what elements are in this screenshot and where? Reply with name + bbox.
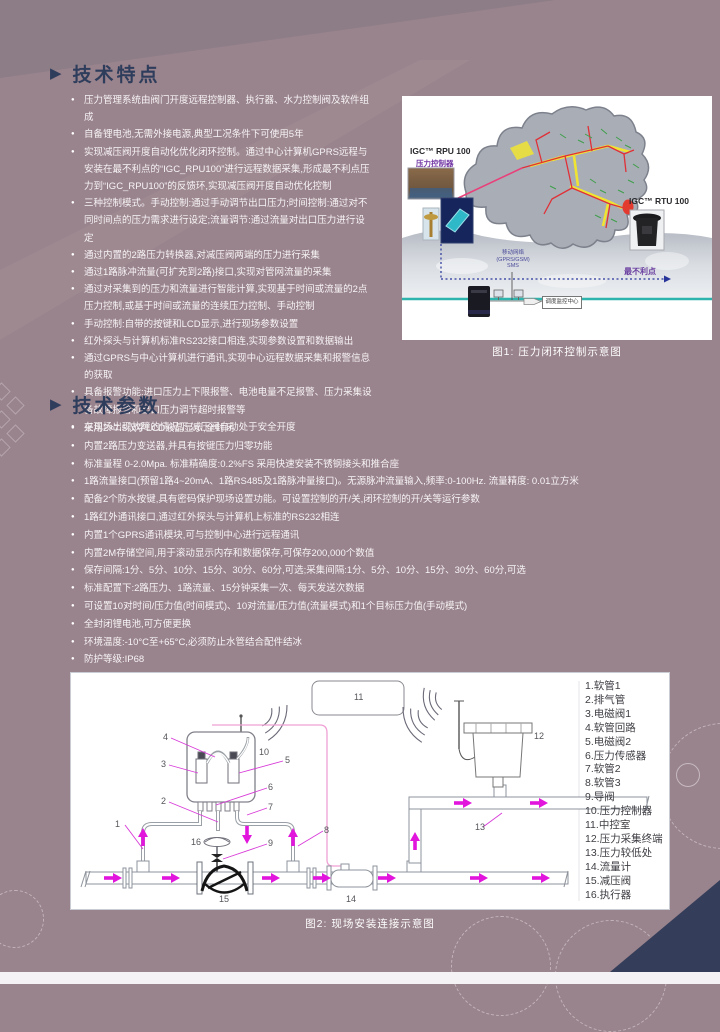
figure2-panel: 1 2 3 4 5 6 7 8 9 10 11 12 13 14 15 16 1… <box>70 672 670 910</box>
network-label: 移动网络 (GPRS/GSM) SMS <box>490 250 536 270</box>
sensor-ports <box>198 802 239 811</box>
collection-terminal <box>464 723 532 787</box>
component-number: 7 <box>268 803 273 812</box>
figure2-caption: 图2: 现场安装连接示意图 <box>70 916 670 931</box>
component-number: 2 <box>161 797 166 806</box>
legend-item: 2.排气管 <box>585 694 669 708</box>
legend-item: 1.软管1 <box>585 680 669 694</box>
bottom-strip <box>0 972 720 984</box>
dashed-circle-bottom <box>451 916 551 1016</box>
feature-item: 通过内置的2路压力转换器,对减压阀两端的压力进行采集 <box>72 247 374 264</box>
legend-item: 3.电磁阀1 <box>585 708 669 722</box>
legend-item: 5.电磁阀2 <box>585 736 669 750</box>
section-arrow-icon: ▶ <box>50 397 62 412</box>
component-number: 6 <box>268 783 273 792</box>
legend-item: 8.软管3 <box>585 777 669 791</box>
legend-item: 14.流量计 <box>585 861 669 875</box>
param-item: 标准量程 0-2.0Mpa. 标准精确度:0.2%FS 采用快速安装不锈钢接头和… <box>72 456 708 474</box>
component-number: 5 <box>285 756 290 765</box>
map-blob <box>464 107 648 248</box>
dashed-circle-bottom-right <box>555 920 667 1032</box>
watermark-diamond <box>0 410 11 428</box>
feature-item: 通过对采集到的压力和流量进行智能计算,实现基于时间或流量的2点压力控制,或基于时… <box>72 281 374 315</box>
feature-item: 通过GPRS与中心计算机进行通讯,实现中心远程数据采集和报警信息的获取 <box>72 350 374 384</box>
watermark-diamond <box>6 396 24 414</box>
ring-right <box>676 763 700 787</box>
component-number: 9 <box>268 839 273 848</box>
component-number: 1 <box>115 820 120 829</box>
component-number: 3 <box>161 760 166 769</box>
network-label-line: SMS <box>490 263 536 270</box>
dashed-circle-left <box>0 890 44 948</box>
legend-item: 7.软管2 <box>585 763 669 777</box>
param-item: 配备2个防水按键,具有密码保护现场设置功能。可设置控制的开/关,闭环控制的开/关… <box>72 491 708 509</box>
legend-item: 15.减压阀 <box>585 875 669 889</box>
watermark-diamond <box>0 382 11 400</box>
param-item: 1路红外通讯接口,通过红外探头与计算机上标准的RS232相连 <box>72 509 708 527</box>
param-item: 1路流量接口(预留1路4~20mA、1路RS485及1路脉冲量接口)。无源脉冲流… <box>72 473 708 491</box>
params-list: 采用2×7.5汉字LCD液晶显示,全封闭 内置2路压力变送器,并具有按键压力归零… <box>72 420 708 669</box>
watermark-diamond <box>0 438 11 456</box>
param-item: 内置1个GPRS通讯模块,可与控制中心进行远程通讯 <box>72 527 708 545</box>
param-item: 可设置10对时间/压力值(时间模式)、10对流量/压力值(流量模式)和1个目标压… <box>72 598 708 616</box>
features-list: 压力管理系统由阀门开度远程控制器、执行器、水力控制阀及软件组成 自备锂电池,无需… <box>72 92 374 436</box>
component-number: 16 <box>191 838 201 847</box>
rpu-sublabel: 压力控制器 <box>416 158 454 169</box>
rtu-label: IGC™ RTU 100 <box>629 196 689 206</box>
legend-item: 6.压力传感器 <box>585 750 669 764</box>
legend-item: 4.软管回路 <box>585 722 669 736</box>
figure2-legend: 1.软管1 2.排气管 3.电磁阀1 4.软管回路 5.电磁阀2 6.压力传感器… <box>585 680 669 903</box>
component-number: 12 <box>534 732 544 741</box>
figure2-art <box>71 673 669 909</box>
datasheet-page: { "colors": { "background": "#99838C", "… <box>0 0 720 984</box>
legend-item: 9.导阀 <box>585 791 669 805</box>
control-center-box: 调度监控中心 <box>542 296 582 309</box>
params-title: 技术参数 <box>73 391 161 418</box>
legend-item: 13.压力较低处 <box>585 847 669 861</box>
feature-item: 自备锂电池,无需外接电源,典型工况条件下可使用5年 <box>72 126 374 143</box>
legend-item: 16.执行器 <box>585 889 669 903</box>
feature-item: 压力管理系统由阀门开度远程控制器、执行器、水力控制阀及软件组成 <box>72 92 374 126</box>
feature-item: 实现减压阀开度自动化优化闭环控制。通过中心计算机GPRS远程与安装在最不利点的“… <box>72 144 374 196</box>
legend-item: 11.中控室 <box>585 819 669 833</box>
watermark-diamond <box>6 424 24 442</box>
component-number: 14 <box>346 895 356 904</box>
section-arrow-icon: ▶ <box>50 66 62 81</box>
component-number: 10 <box>259 748 269 757</box>
component-number: 4 <box>163 733 168 742</box>
feature-item: 手动控制:自带的按键和LCD显示,进行现场参数设置 <box>72 316 374 333</box>
flow-meter <box>327 864 377 890</box>
feature-item: 通过1路脉冲流量(可扩充到2路)接口,实现对管网流量的采集 <box>72 264 374 281</box>
params-header: ▶ 技术参数 <box>50 391 161 418</box>
component-number: 15 <box>219 895 229 904</box>
param-item: 标准配置下:2路压力、1路流量、15分钟采集一次、每天发送次数据 <box>72 580 708 598</box>
legend-item: 10.压力控制器 <box>585 805 669 819</box>
param-item: 全封闭锂电池,可方便更换 <box>72 616 708 634</box>
param-item: 内置2路压力变送器,并具有按键压力归零功能 <box>72 438 708 456</box>
param-item: 防护等级:IP68 <box>72 651 708 669</box>
component-number: 11 <box>354 693 363 702</box>
component-number: 13 <box>475 823 485 832</box>
figure1-caption: 图1: 压力闭环控制示意图 <box>402 344 712 359</box>
param-item: 环境温度:-10°C至+65°C,必须防止水管结合配件结冰 <box>72 634 708 652</box>
feature-item: 红外探头与计算机标准RS232接口相连,实现参数设置和数据输出 <box>72 333 374 350</box>
param-item: 保存间隔:1分、5分、10分、15分、30分、60分,可选;采集间隔:1分、5分… <box>72 562 708 580</box>
features-header: ▶ 技术特点 <box>50 60 161 87</box>
param-item: 采用2×7.5汉字LCD液晶显示,全封闭 <box>72 420 708 438</box>
figure1-panel: IGC™ RPU 100 压力控制器 IGC™ RTU 100 最不利点 移动网… <box>402 96 712 340</box>
legend-item: 12.压力采集终端 <box>585 833 669 847</box>
feature-item: 三种控制模式。手动控制:通过手动调节出口压力;时间控制:通过对不同时间点的压力需… <box>72 195 374 247</box>
component-number: 8 <box>324 826 329 835</box>
worst-point-label: 最不利点 <box>624 266 656 277</box>
rpu-label: IGC™ RPU 100 <box>410 146 470 156</box>
features-title: 技术特点 <box>73 60 161 87</box>
param-item: 内置2M存储空间,用于滚动显示内存和数据保存,可保存200,000个数值 <box>72 545 708 563</box>
